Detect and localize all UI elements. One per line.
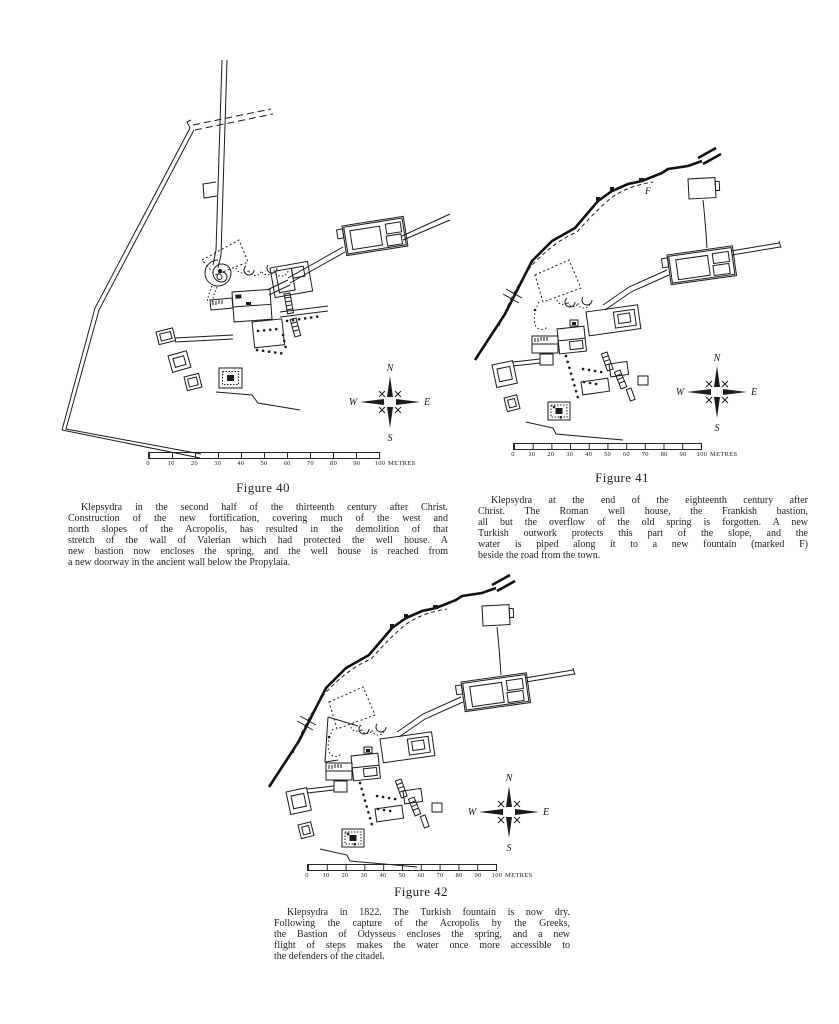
scale-tick: 30	[214, 460, 221, 467]
scale-tick: 20	[191, 460, 198, 467]
caption-line: Following the capture of the Acropolis b…	[274, 918, 570, 929]
compass-south-label: S	[507, 843, 512, 854]
caption-line: stretch of the wall of Valerian which ha…	[68, 535, 448, 546]
scale-tick: 70	[307, 460, 314, 467]
figure-41-map-svg: F	[455, 148, 839, 444]
compass-west-label: W	[676, 387, 686, 398]
scale-unit: METRES	[702, 451, 737, 458]
scale-tick: 40	[379, 872, 386, 879]
scale-unit: METRES	[380, 460, 415, 467]
scale-tick: 90	[680, 451, 687, 458]
caption-line: the defenders of the citadel.	[274, 951, 570, 962]
scale-tick: 20	[341, 872, 348, 879]
compass-rose: N S E W	[349, 363, 430, 444]
scale-tick: 50	[398, 872, 405, 879]
caption-line: new bastion now encloses the spring, and…	[68, 546, 448, 557]
figure-41-label: Figure 41	[562, 470, 682, 486]
caption-line: Construction of the new fortification, c…	[68, 513, 448, 524]
scale-tick: 60	[623, 451, 630, 458]
scale-tick: 80	[661, 451, 668, 458]
figure-42-map-art	[269, 575, 575, 867]
scale-tick: 10	[168, 460, 175, 467]
compass-west-label: W	[349, 397, 359, 408]
caption-line: Klepsydra at the end of the eighteenth c…	[478, 495, 808, 506]
compass-rose: N S E W	[468, 773, 549, 854]
scale-tick: 0	[511, 451, 515, 458]
caption-line: the Bastion of Odysseus encloses the spr…	[274, 929, 570, 940]
figure-42-label: Figure 42	[361, 884, 481, 900]
scale-bar-ticks: 0 10 20 30 40 50 60 70 80 90 100 METRES	[513, 451, 702, 460]
compass-rose: N S E W	[676, 353, 757, 434]
scale-unit: METRES	[497, 872, 532, 879]
caption-line: water is piped along it to a new fountai…	[478, 539, 808, 550]
scale-tick: 90	[353, 460, 360, 467]
scale-bar-rule	[513, 443, 702, 450]
scale-tick: 20	[547, 451, 554, 458]
compass-north-label: N	[505, 773, 514, 784]
figure-41-scale-bar: 0 10 20 30 40 50 60 70 80 90 100 METRES	[513, 443, 702, 460]
figure-41-map-art: F	[475, 148, 781, 440]
scale-tick: 80	[330, 460, 337, 467]
scale-tick: 50	[260, 460, 267, 467]
caption-line: a new doorway in the ancient wall below …	[68, 557, 448, 568]
figure-42-caption: Klepsydra in 1822. The Turkish fountain …	[274, 907, 570, 962]
scale-bar-ticks: 0 10 20 30 40 50 60 70 80 90 100 METRES	[148, 460, 380, 469]
compass-east-label: E	[423, 397, 430, 408]
scale-tick: 30	[566, 451, 573, 458]
scale-bar-rule	[148, 452, 380, 459]
caption-line: Turkish outwork protects this part of th…	[478, 528, 808, 539]
figure-40-caption: Klepsydra in the second half of the thir…	[68, 502, 448, 568]
caption-line: all but the overflow of the old spring i…	[478, 517, 808, 528]
scale-tick: 90	[474, 872, 481, 879]
caption-line: north slopes of the Acropolis, has resul…	[68, 524, 448, 535]
scale-tick: 60	[284, 460, 291, 467]
caption-line: Klepsydra in the second half of the thir…	[68, 502, 448, 513]
scale-tick: 10	[528, 451, 535, 458]
scale-bar-ticks: 0 10 20 30 40 50 60 70 80 90 100 METRES	[307, 872, 497, 881]
caption-line: beside the road from the town.	[478, 550, 808, 561]
compass-south-label: S	[715, 423, 720, 434]
figure-40-map-art: N S E W	[62, 60, 450, 458]
caption-line: flight of steps makes the water once mor…	[274, 940, 570, 951]
compass-west-label: W	[468, 807, 478, 818]
figure-40-scale-bar: 0 10 20 30 40 50 60 70 80 90 100 METRES	[148, 452, 380, 469]
scale-tick: 10	[322, 872, 329, 879]
fountain-label: F	[644, 187, 651, 197]
compass-east-label: E	[542, 807, 549, 818]
scale-tick: 40	[585, 451, 592, 458]
scale-tick: 80	[455, 872, 462, 879]
scale-tick: 0	[305, 872, 309, 879]
page: N S E W F	[0, 0, 839, 1024]
compass-north-label: N	[386, 363, 395, 374]
caption-line: Christ. The Roman well house, the Franki…	[478, 506, 808, 517]
compass-south-label: S	[388, 433, 393, 444]
figure-41-caption: Klepsydra at the end of the eighteenth c…	[478, 495, 808, 561]
scale-tick: 30	[360, 872, 367, 879]
compass-north-label: N	[713, 353, 722, 364]
scale-tick: 70	[642, 451, 649, 458]
scale-tick: 60	[417, 872, 424, 879]
scale-bar-rule	[307, 864, 497, 871]
scale-tick: 0	[146, 460, 150, 467]
figure-42-map-svg: N S E W	[255, 580, 625, 876]
figure-42-scale-bar: 0 10 20 30 40 50 60 70 80 90 100 METRES	[307, 864, 497, 881]
scale-tick: 50	[604, 451, 611, 458]
scale-tick: 40	[237, 460, 244, 467]
compass-east-label: E	[750, 387, 757, 398]
figure-40-map-svg: N S E W	[40, 50, 450, 465]
figure-40-label: Figure 40	[203, 480, 323, 496]
caption-line: Klepsydra in 1822. The Turkish fountain …	[274, 907, 570, 918]
scale-tick: 70	[436, 872, 443, 879]
